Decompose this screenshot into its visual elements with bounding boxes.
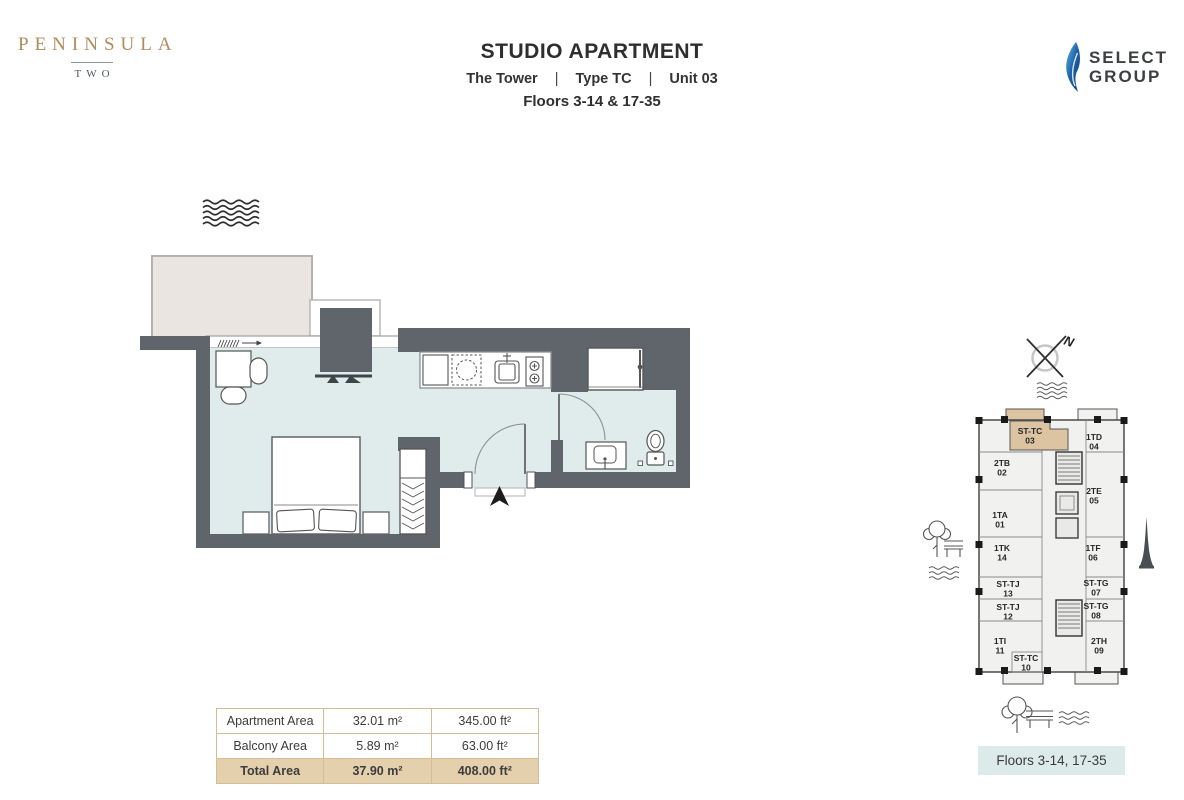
brochure-page: PENINSULA TWO STUDIO APARTMENT The Tower… <box>0 0 1184 800</box>
wardrobe <box>400 449 426 534</box>
area-row-label: Balcony Area <box>217 734 324 759</box>
area-table: Apartment Area32.01 m²345.00 ft²Balcony … <box>216 708 539 784</box>
keyplan-unit-label-1TI-11: 1TI11 <box>994 636 1006 656</box>
stove-icon <box>526 357 543 386</box>
kitchen-counter <box>420 352 551 388</box>
area-row-value: 345.00 ft² <box>431 709 538 734</box>
area-row-value: 37.90 m² <box>324 759 431 784</box>
compass-icon: N <box>1027 333 1077 377</box>
compass-n-label: N <box>1062 333 1077 351</box>
fridge-icon <box>423 355 448 385</box>
area-row-value: 408.00 ft² <box>431 759 538 784</box>
area-table-row-total: Total Area37.90 m²408.00 ft² <box>217 759 539 784</box>
area-row-label: Total Area <box>217 759 324 784</box>
tv-column <box>320 308 372 372</box>
area-table-row: Balcony Area5.89 m²63.00 ft² <box>217 734 539 759</box>
chair <box>250 358 267 384</box>
pillow <box>318 509 356 532</box>
burj-khalifa-icon <box>1139 517 1154 569</box>
waves-icon <box>929 567 959 580</box>
waves-icon <box>1059 712 1089 725</box>
sea-waves-icon <box>203 200 259 226</box>
shower <box>588 348 643 390</box>
area-row-value: 32.01 m² <box>324 709 431 734</box>
area-row-value: 63.00 ft² <box>431 734 538 759</box>
vanity-sink <box>586 442 626 469</box>
park-icon <box>924 521 964 557</box>
park-icon <box>1002 697 1053 733</box>
area-table-row: Apartment Area32.01 m²345.00 ft² <box>217 709 539 734</box>
floor-plan-canvas: N <box>0 0 1184 800</box>
waves-icon <box>1037 383 1067 399</box>
nightstand <box>363 512 389 534</box>
keyplan-floors-box: Floors 3-14, 17-35 <box>978 746 1125 775</box>
nightstand <box>243 512 269 534</box>
key-plan: N <box>924 333 1155 733</box>
pillow <box>277 509 315 532</box>
chair <box>221 387 246 404</box>
area-table-body: Apartment Area32.01 m²345.00 ft²Balcony … <box>217 709 539 784</box>
area-row-label: Apartment Area <box>217 709 324 734</box>
area-row-value: 5.89 m² <box>324 734 431 759</box>
